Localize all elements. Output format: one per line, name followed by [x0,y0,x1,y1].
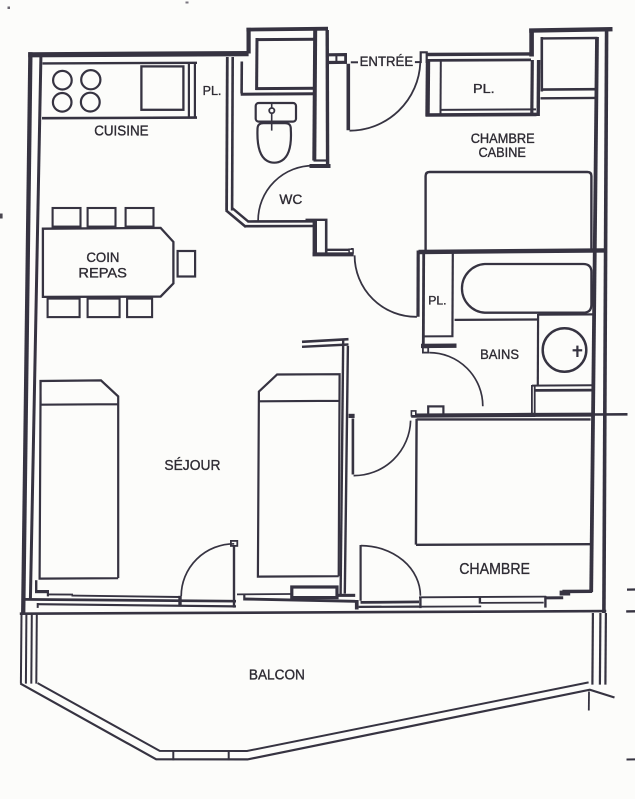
svg-text:CUISINE: CUISINE [94,124,149,140]
svg-text:PL.: PL. [203,84,222,98]
svg-text:WC: WC [279,192,302,207]
svg-text:CHAMBRE: CHAMBRE [471,131,535,146]
svg-text:PL.: PL. [473,81,495,96]
svg-text:PL.: PL. [428,294,446,308]
svg-text:REPAS: REPAS [78,265,127,280]
svg-text:SÉJOUR: SÉJOUR [164,457,220,474]
svg-text:BAINS: BAINS [480,346,519,362]
svg-text:BALCON: BALCON [249,668,305,684]
svg-text:CABINE: CABINE [478,145,526,160]
svg-text:COIN: COIN [86,250,119,265]
svg-text:CHAMBRE: CHAMBRE [459,561,530,578]
svg-text:ENTRÉE: ENTRÉE [360,54,414,69]
